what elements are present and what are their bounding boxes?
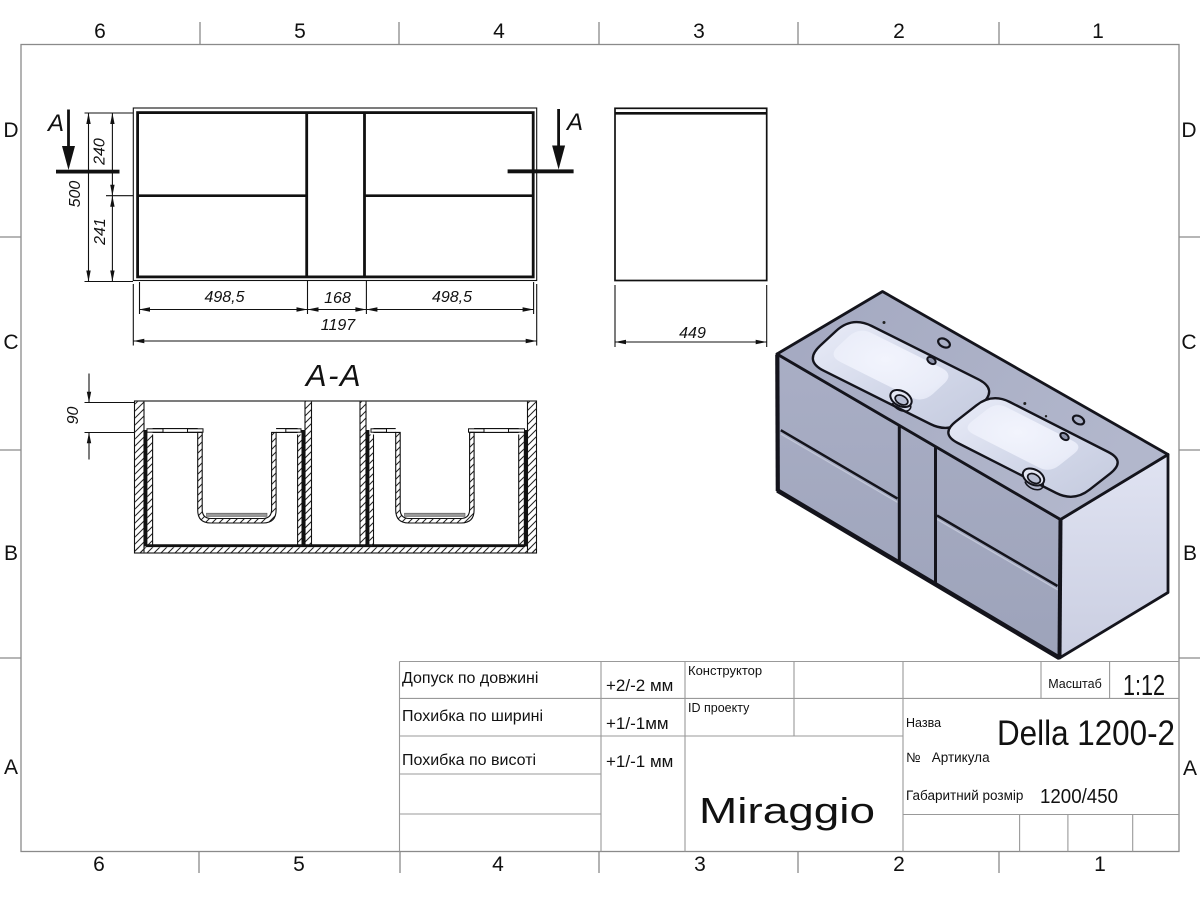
svg-text:B: B [1183,542,1197,565]
svg-text:D: D [3,119,18,142]
svg-text:498,5: 498,5 [204,289,244,306]
svg-text:1200/450: 1200/450 [1040,786,1118,808]
svg-text:Miraggio: Miraggio [699,790,875,831]
svg-text:6: 6 [94,20,106,43]
svg-text:A: A [4,756,18,779]
svg-text:Похибка по висоті: Похибка по висоті [402,752,536,769]
svg-text:2: 2 [893,853,905,876]
svg-text:+1/-1 мм: +1/-1 мм [606,752,673,771]
svg-text:Масштаб: Масштаб [1048,677,1101,691]
svg-text:Допуск по довжині: Допуск по довжині [402,670,538,687]
svg-text:Della 1200-2: Della 1200-2 [997,714,1175,753]
svg-text:A-A: A-A [304,358,362,393]
svg-text:240: 240 [92,138,109,166]
svg-text:5: 5 [293,853,305,876]
svg-text:A: A [46,110,64,137]
svg-text:D: D [1181,119,1196,142]
svg-text:№ Артикула: № Артикула [906,750,990,765]
svg-text:Габаритний розмір: Габаритний розмір [906,788,1023,803]
svg-text:498,5: 498,5 [432,289,472,306]
svg-text:C: C [1181,331,1196,354]
svg-text:A: A [1183,757,1197,780]
svg-text:1: 1 [1092,20,1104,43]
svg-text:Назва: Назва [906,716,941,730]
svg-text:1197: 1197 [321,317,357,334]
svg-text:241: 241 [92,218,109,246]
svg-text:500: 500 [67,181,84,208]
svg-text:1:12: 1:12 [1123,670,1165,702]
svg-text:ID проекту: ID проекту [688,701,750,715]
svg-text:5: 5 [294,20,306,43]
svg-text:449: 449 [679,325,706,342]
svg-text:4: 4 [492,853,504,876]
svg-text:C: C [3,331,18,354]
svg-text:+1/-1мм: +1/-1мм [606,714,669,733]
svg-text:168: 168 [324,290,351,307]
svg-text:Конструктор: Конструктор [688,663,762,678]
svg-text:1: 1 [1094,853,1106,876]
svg-text:6: 6 [93,853,105,876]
svg-text:+2/-2 мм: +2/-2 мм [606,676,673,695]
svg-text:Похибка по ширині: Похибка по ширині [402,708,543,725]
svg-text:2: 2 [893,20,905,43]
svg-text:A: A [565,109,583,136]
svg-text:B: B [4,542,18,565]
svg-text:4: 4 [493,20,505,43]
svg-text:3: 3 [694,853,706,876]
svg-text:3: 3 [693,20,705,43]
svg-text:90: 90 [65,407,82,425]
